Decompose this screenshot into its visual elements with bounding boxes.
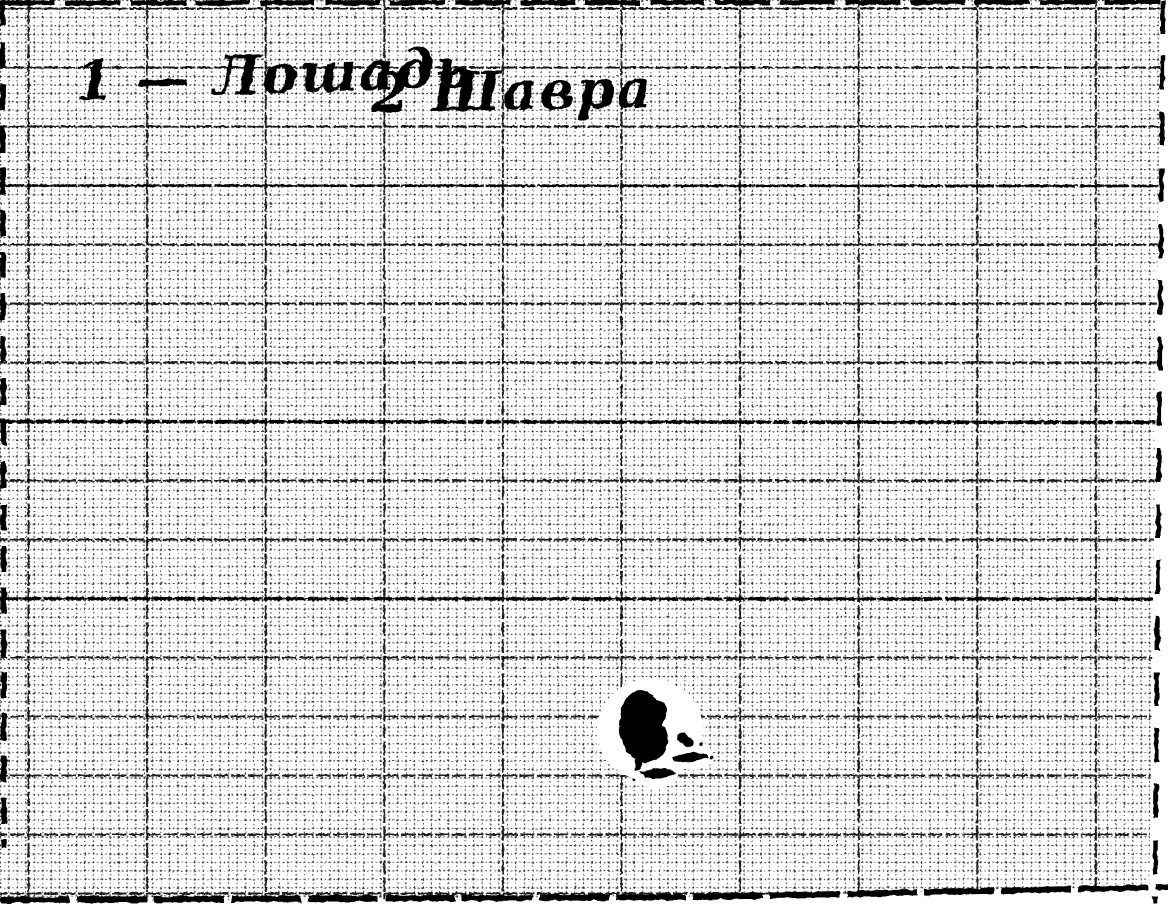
heavy-rule-row-7 bbox=[0, 422, 1168, 423]
left-edge-line bbox=[3, 0, 5, 848]
graph-paper-scan: 1 — Лошадь 2 Шавра bbox=[0, 0, 1168, 904]
ink-speck bbox=[632, 778, 635, 781]
ink-speck bbox=[711, 756, 714, 759]
scanned-graph-paper-page: 1 — Лошадь 2 Шавра bbox=[0, 0, 1168, 904]
grid-layers bbox=[0, 0, 1168, 904]
caption-figure2: 2 Шавра bbox=[370, 56, 654, 125]
medium-vertical-rules bbox=[0, 0, 1168, 904]
heavy-rule-row-3 bbox=[0, 186, 1168, 187]
ink-speck bbox=[699, 742, 702, 745]
